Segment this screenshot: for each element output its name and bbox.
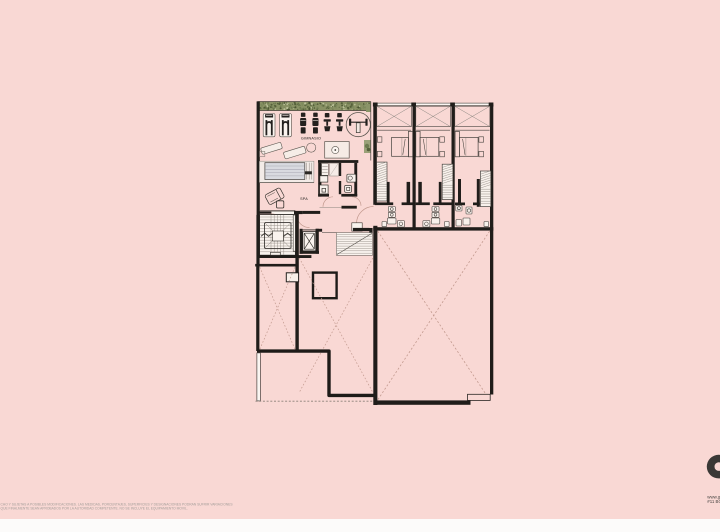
svg-text:GIMNASIO: GIMNASIO — [301, 136, 321, 140]
svg-text:SPA: SPA — [300, 197, 308, 201]
svg-text:QUE FINALMENTE SEAN APROBADOS: QUE FINALMENTE SEAN APROBADOS POR LA AUT… — [1, 506, 188, 510]
svg-text:#11 BO: #11 BO — [707, 499, 720, 504]
